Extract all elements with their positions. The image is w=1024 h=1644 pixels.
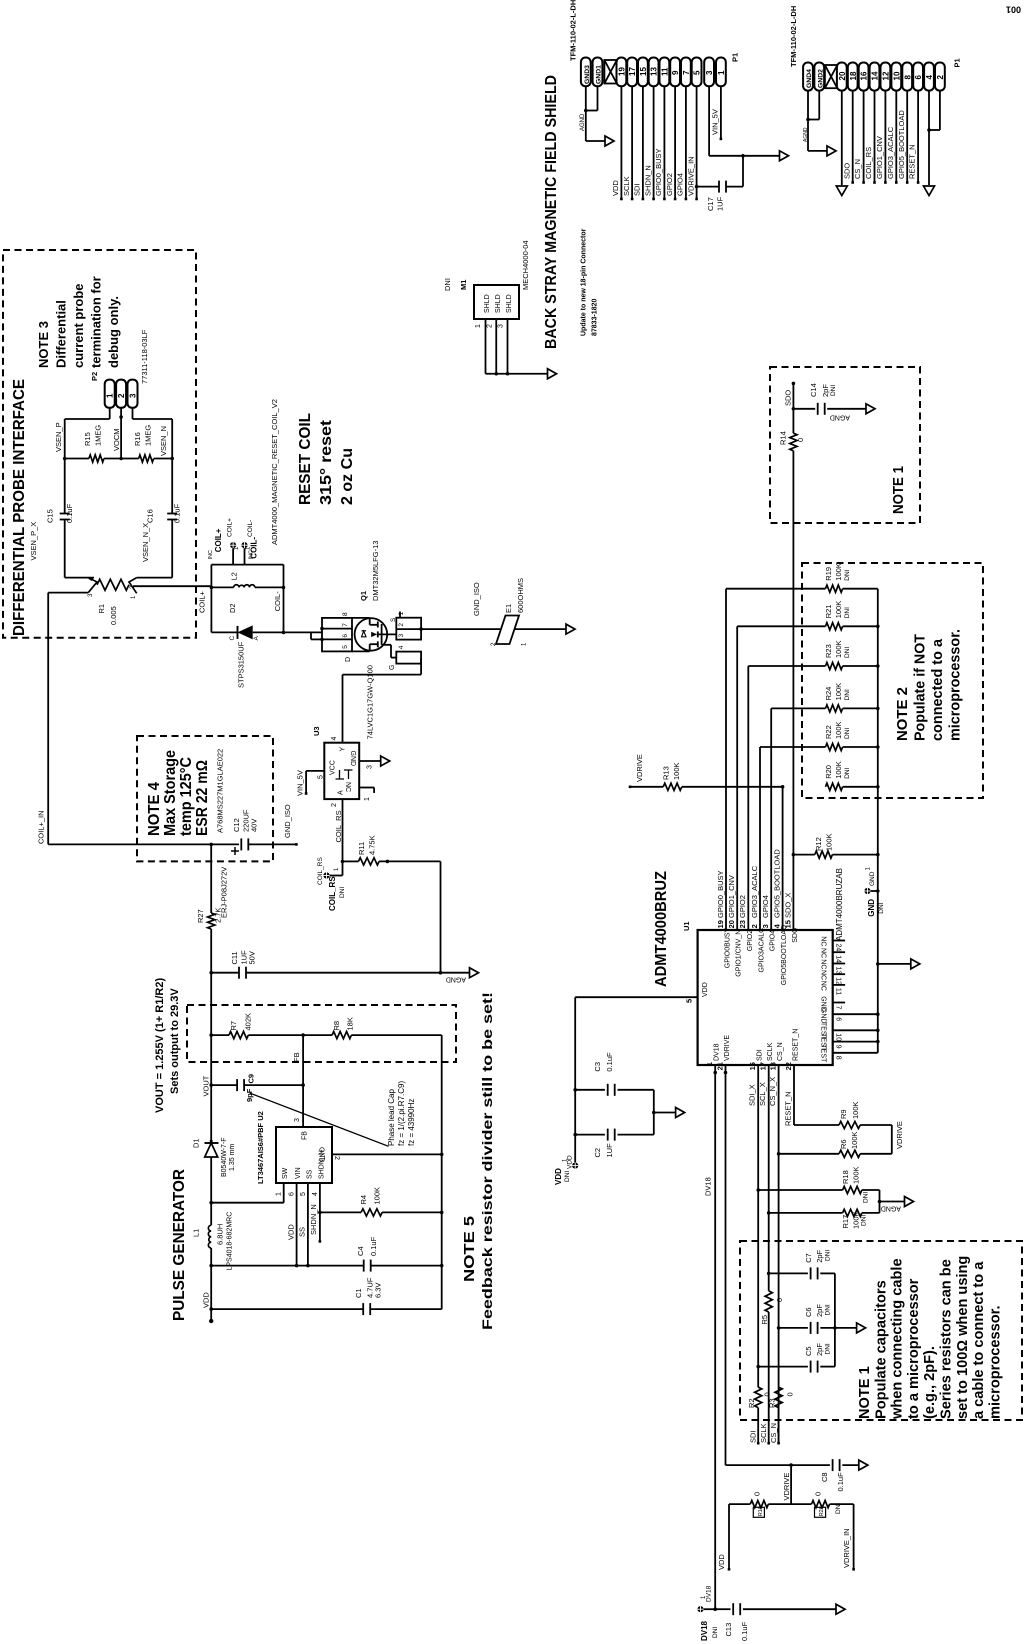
svg-text:0: 0 [796,438,805,442]
svg-text:6: 6 [835,1017,842,1021]
svg-text:P2: P2 [90,372,99,381]
svg-text:DNI: DNI [339,887,346,898]
svg-text:VDRIVE: VDRIVE [782,1473,791,1501]
svg-text:C5: C5 [804,1346,813,1356]
svg-text:R21: R21 [824,605,833,619]
svg-text:SHDN_N: SHDN_N [318,1150,325,1179]
svg-text:R2: R2 [747,1398,756,1408]
svg-text:3: 3 [129,393,138,398]
svg-text:C14: C14 [809,383,818,397]
svg-text:GPIO5_BOOTLOAD: GPIO5_BOOTLOAD [772,849,781,918]
svg-text:R6: R6 [839,1139,848,1149]
svg-text:2pF: 2pF [815,1343,824,1356]
svg-text:VDRIVE: VDRIVE [724,1035,731,1061]
svg-text:AGND: AGND [803,127,809,142]
svg-text:3: 3 [398,633,405,637]
svg-text:ESR 22 mΩ: ESR 22 mΩ [194,760,211,836]
svg-text:100K: 100K [850,1131,859,1149]
svg-text:Populate if NOT: Populate if NOT [912,634,929,741]
svg-text:15: 15 [783,920,792,928]
svg-text:1MEG: 1MEG [144,425,153,446]
svg-text:4.75K: 4.75K [368,835,377,855]
svg-text:DNI: DNI [835,1503,842,1514]
svg-text:1MEG: 1MEG [94,425,103,446]
svg-text:8: 8 [903,75,912,80]
svg-text:SDO: SDO [792,927,799,943]
svg-text:Differential: Differential [54,300,69,368]
svg-text:4: 4 [331,737,338,741]
svg-text:C13: C13 [724,1623,733,1637]
svg-text:Series resistors can be: Series resistors can be [939,1259,955,1419]
svg-text:NC: NC [344,782,351,792]
svg-text:Populate capacitors: Populate capacitors [873,1280,889,1419]
svg-text:100K: 100K [834,640,843,658]
svg-text:C17: C17 [706,197,715,211]
svg-text:3: 3 [367,765,374,769]
svg-text:GND_ISO: GND_ISO [283,804,292,838]
svg-text:100K: 100K [373,1187,382,1205]
svg-text:0.1uF: 0.1uF [740,1621,749,1641]
svg-text:LT3467AIS6#PBF U2: LT3467AIS6#PBF U2 [256,1111,265,1184]
svg-text:a cable to connect to a: a cable to connect to a [971,1261,987,1419]
svg-text:R17: R17 [841,1215,850,1229]
svg-text:R8: R8 [332,1021,341,1031]
svg-text:Feedback resistor divider stil: Feedback resistor divider still to be se… [479,992,495,1330]
svg-text:COIL+: COIL+ [198,590,207,613]
svg-text:GND: GND [869,871,876,886]
svg-text:R5: R5 [760,1315,769,1325]
svg-text:NOTE 1: NOTE 1 [890,466,907,514]
svg-text:11: 11 [835,988,842,995]
svg-text:P1: P1 [731,53,740,62]
svg-text:13: 13 [835,967,842,975]
svg-text:C11: C11 [230,951,239,964]
svg-text:20: 20 [727,920,736,928]
svg-text:1: 1 [475,324,482,328]
svg-text:Max Storage: Max Storage [162,750,179,836]
svg-text:SDO: SDO [783,390,792,406]
svg-text:3: 3 [705,70,714,75]
svg-text:SS: SS [306,1169,313,1179]
svg-text:VDD: VDD [286,1224,295,1240]
svg-text:7: 7 [682,70,691,75]
svg-text:COIL_RS: COIL_RS [328,876,337,911]
svg-text:TEST: TEST [820,1044,827,1063]
svg-text:DV18: DV18 [700,1620,709,1641]
svg-text:RESET_N: RESET_N [793,1029,800,1061]
svg-text:debug only.: debug only. [106,296,121,368]
svg-text:R14: R14 [779,431,788,445]
svg-text:8: 8 [835,1056,842,1060]
svg-text:SDI: SDI [757,1049,764,1061]
svg-text:NC: NC [820,936,827,946]
svg-text:11: 11 [661,67,670,76]
svg-text:0: 0 [775,1298,784,1302]
svg-text:4: 4 [925,75,934,80]
svg-text:0.1uF: 0.1uF [369,1236,378,1256]
svg-text:0: 0 [763,1392,772,1396]
svg-text:R1: R1 [97,604,106,614]
svg-text:GPIO1_CNV: GPIO1_CNV [727,875,736,918]
svg-text:DNI: DNI [825,1343,832,1354]
svg-text:B0540W-7-F: B0540W-7-F [221,1137,228,1177]
svg-text:NC: NC [820,970,827,980]
svg-text:VDD: VDD [702,982,709,997]
svg-text:C1: C1 [354,1288,363,1298]
svg-text:VDD: VDD [611,180,620,196]
svg-text:6.8UH: 6.8UH [216,1224,225,1245]
svg-text:SHLD: SHLD [506,294,513,313]
svg-text:current probe: current probe [71,283,86,368]
svg-text:20: 20 [838,71,847,80]
svg-text:connected to a: connected to a [929,638,946,741]
svg-text:R12: R12 [814,837,823,851]
svg-text:RESET_N: RESET_N [784,1091,793,1126]
svg-text:VIN_5V: VIN_5V [296,770,305,796]
svg-text:GND4: GND4 [806,69,813,88]
svg-text:CS_N: CS_N [853,159,862,179]
svg-text:7: 7 [835,1006,842,1010]
svg-text:0.1uF: 0.1uF [173,503,182,523]
svg-text:DMT32M5LFG-13: DMT32M5LFG-13 [371,541,380,601]
svg-text:INC: INC [208,550,214,560]
svg-text:VDRIVE: VDRIVE [635,754,644,782]
svg-text:9pF: 9pF [245,1088,254,1102]
svg-text:Sets output to 29.3V: Sets output to 29.3V [169,988,181,1094]
svg-text:TFM-110-02-L-DH: TFM-110-02-L-DH [569,0,578,61]
svg-text:19: 19 [716,920,725,928]
svg-text:DNI: DNI [863,1192,870,1203]
svg-text:R23: R23 [824,644,833,658]
svg-text:GPIO1_CNV: GPIO1_CNV [875,136,884,179]
svg-text:C15: C15 [46,509,55,523]
svg-text:MECH4000-04: MECH4000-04 [521,240,530,290]
svg-text:LPS4018-682MRC: LPS4018-682MRC [227,1212,234,1271]
svg-text:D1: D1 [191,1138,200,1148]
svg-text:VDRIVE_IN: VDRIVE_IN [686,156,695,196]
svg-text:R15: R15 [83,432,92,446]
svg-text:2: 2 [936,75,945,80]
svg-text:DNI: DNI [830,385,837,396]
svg-text:E1: E1 [504,604,513,613]
svg-text:18: 18 [849,71,858,80]
svg-text:5: 5 [342,645,349,649]
svg-text:GPIO2: GPIO2 [747,930,754,952]
svg-text:15: 15 [639,67,648,76]
svg-text:DNI: DNI [443,278,452,291]
svg-text:A: A [253,636,260,641]
svg-text:Q1: Q1 [359,591,368,601]
svg-text:2: 2 [331,803,338,807]
svg-text:R7: R7 [229,1021,238,1031]
svg-text:3: 3 [294,1118,301,1122]
svg-text:0: 0 [753,1492,762,1496]
svg-text:1UF: 1UF [605,1143,614,1158]
svg-text:DNI: DNI [844,607,851,618]
svg-text:when connecting cable: when connecting cable [890,1258,906,1420]
svg-text:SDI_X: SDI_X [748,1084,757,1106]
svg-text:PULSE GENERATOR: PULSE GENERATOR [171,1169,188,1321]
svg-text:AGND: AGND [830,414,850,421]
svg-text:R19: R19 [824,567,833,581]
svg-text:ADMT4000_MAGNETIC_RESET_COIL_V: ADMT4000_MAGNETIC_RESET_COIL_V2 [270,399,279,545]
svg-text:DNI: DNI [825,1250,832,1261]
svg-text:GND2: GND2 [817,69,824,88]
svg-text:22: 22 [784,1062,793,1070]
svg-text:C2: C2 [593,1148,602,1158]
svg-text:GPIO2: GPIO2 [738,895,747,918]
svg-text:87833-1820: 87833-1820 [592,299,599,336]
svg-text:R13: R13 [662,766,671,780]
svg-text:0.1uF: 0.1uF [836,1472,845,1492]
svg-text:2pF: 2pF [821,384,830,397]
svg-text:NC: NC [820,981,827,991]
svg-text:STPS3150UF: STPS3150UF [237,641,246,688]
svg-text:6.3V: 6.3V [374,1283,383,1298]
svg-text:Phase lead Cap: Phase lead Cap [387,1089,396,1146]
svg-text:DNI: DNI [844,689,851,700]
svg-text:microprocessor.: microprocessor. [947,629,964,741]
svg-text:100K: 100K [834,721,843,739]
svg-text:12: 12 [835,977,842,985]
svg-text:DNI: DNI [878,902,885,913]
svg-text:SS: SS [298,1227,307,1237]
svg-text:GND_ISO: GND_ISO [472,582,481,616]
svg-text:R26: R26 [819,1506,825,1516]
svg-text:R16: R16 [133,432,142,446]
svg-text:5: 5 [317,775,324,779]
svg-text:6: 6 [914,75,923,80]
svg-text:U3: U3 [312,726,321,736]
svg-text:C3: C3 [593,1062,602,1072]
svg-text:GPIO0_BUSY: GPIO0_BUSY [716,870,725,918]
svg-text:GPIO4: GPIO4 [676,173,685,196]
svg-text:GPIO4: GPIO4 [761,895,770,918]
svg-text:14: 14 [871,71,880,80]
svg-text:S: S [390,617,397,622]
svg-text:C12: C12 [232,818,241,832]
svg-text:fz = 1/(2.pi.R7.C9): fz = 1/(2.pi.R7.C9) [397,1081,406,1146]
svg-text:0: 0 [814,1492,823,1496]
svg-text:SDO: SDO [842,163,851,179]
svg-text:GND1: GND1 [596,65,603,84]
svg-text:L2: L2 [230,572,239,580]
svg-text:GPIO2: GPIO2 [665,173,674,196]
svg-text:SHDN_N: SHDN_N [309,1204,318,1235]
svg-text:D2: D2 [228,603,237,613]
svg-text:4: 4 [312,1192,319,1196]
svg-text:NC: NC [820,948,827,958]
svg-text:DNI: DNI [712,1627,719,1638]
svg-text:17: 17 [759,1062,768,1070]
svg-text:NC: NC [820,959,827,969]
svg-text:77311-118-03LF: 77311-118-03LF [140,329,149,384]
svg-text:6: 6 [289,1192,296,1196]
svg-text:AGND: AGND [580,113,586,131]
svg-text:VDRIVE: VDRIVE [895,1121,904,1149]
svg-text:VIN_5V: VIN_5V [711,109,720,135]
svg-text:C: C [229,636,236,641]
svg-text:RESET COIL: RESET COIL [297,413,314,505]
svg-text:SCLK: SCLK [759,1423,768,1443]
svg-text:AGND: AGND [881,1205,901,1212]
svg-text:50V: 50V [248,951,257,964]
svg-text:GPIO3ACALC: GPIO3ACALC [759,928,766,973]
svg-text:VOUT = 1.255V (1+ R1/R2): VOUT = 1.255V (1+ R1/R2) [154,978,166,1113]
svg-text:12: 12 [882,71,891,80]
svg-text:DNI: DNI [564,1171,571,1182]
svg-text:1UF: 1UF [716,196,725,211]
svg-text:9: 9 [835,1045,842,1049]
svg-text:GND: GND [867,899,876,917]
svg-text:FB: FB [302,1131,309,1140]
svg-text:VSEN_P: VSEN_P [54,422,63,452]
svg-text:temp 125°C: temp 125°C [178,757,195,836]
svg-text:COIL_RS: COIL_RS [864,147,873,179]
svg-text:ADMT4000BRUZAB: ADMT4000BRUZAB [835,868,844,941]
svg-text:C6: C6 [804,1307,813,1317]
svg-text:RESET_N: RESET_N [908,144,917,179]
svg-text:DIFFERENTIAL PROBE INTERFACE: DIFFERENTIAL PROBE INTERFACE [11,379,28,636]
svg-text:VIN: VIN [295,1167,302,1179]
svg-text:24: 24 [835,944,842,952]
svg-text:6: 6 [342,634,349,638]
svg-text:1: 1 [276,1192,283,1196]
svg-text:SCLK: SCLK [767,1042,774,1061]
svg-text:100K: 100K [825,833,834,851]
svg-text:1: 1 [705,1062,714,1066]
svg-text:VSEN_P_X: VSEN_P_X [29,522,38,561]
svg-text:C16: C16 [146,509,155,523]
svg-text:TFM-110-02-L-DH: TFM-110-02-L-DH [789,6,798,67]
svg-text:GPIO0BUSY: GPIO0BUSY [725,927,732,968]
svg-text:DV18: DV18 [704,1177,713,1196]
svg-text:5: 5 [300,1192,307,1196]
svg-text:5: 5 [685,999,694,1003]
svg-text:Y: Y [340,747,347,752]
svg-text:74LVC1G17GW-Q100: 74LVC1G17GW-Q100 [365,665,374,739]
svg-text:L1: L1 [192,1229,201,1237]
svg-text:Update to new 18-pin Connector: Update to new 18-pin Connector [581,228,588,336]
svg-text:SHDN_N: SHDN_N [643,165,652,196]
svg-text:R4: R4 [359,1195,368,1205]
svg-text:SDI: SDI [633,183,642,196]
svg-text:100K: 100K [851,1101,860,1119]
svg-text:1: 1 [398,612,405,616]
svg-text:GPIO4: GPIO4 [770,930,777,952]
svg-text:FB: FB [292,1052,301,1062]
svg-text:VSEN_N: VSEN_N [159,426,168,456]
svg-text:CS_N: CS_N [777,1042,784,1061]
svg-text:NOTE 4: NOTE 4 [146,782,163,836]
svg-text:600OHMS: 600OHMS [516,578,525,613]
svg-text:DNI: DNI [844,767,851,778]
svg-text:VDD: VDD [717,1554,726,1570]
svg-text:C9: C9 [247,1074,256,1084]
svg-text:VOCM: VOCM [112,429,121,452]
svg-text:fz = 43990Hz: fz = 43990Hz [407,1099,416,1146]
svg-text:VCC: VCC [330,760,337,775]
svg-text:8: 8 [342,612,349,616]
svg-text:9: 9 [671,70,680,75]
svg-text:1: 1 [717,70,726,75]
svg-text:C8: C8 [820,1472,829,1482]
svg-text:315° reset: 315° reset [318,420,335,505]
svg-text:0.1uF: 0.1uF [605,1052,614,1072]
svg-text:R22: R22 [824,725,833,739]
svg-text:13: 13 [650,67,659,76]
svg-text:10: 10 [892,71,901,80]
svg-text:SDI: SDI [748,1430,757,1443]
svg-text:001: 001 [1006,5,1021,15]
svg-text:GPIO5BOOTLOAD: GPIO5BOOTLOAD [781,925,788,985]
svg-text:SCL_X: SCL_X [758,1082,767,1106]
svg-text:COIL+: COIL+ [214,528,223,552]
svg-text:A: A [338,790,345,795]
svg-text:GPIO0_BUSY: GPIO0_BUSY [654,148,663,196]
svg-text:ADMT4000BRUZ: ADMT4000BRUZ [653,871,670,987]
svg-text:G: G [389,665,396,670]
svg-text:R20: R20 [824,765,833,779]
svg-text:SDO_X: SDO_X [783,893,792,918]
svg-text:R9: R9 [839,1109,848,1119]
svg-text:U1: U1 [682,921,691,931]
svg-text:1.35 mm: 1.35 mm [229,1144,236,1171]
svg-text:100K: 100K [834,761,843,779]
svg-text:CS_N: CS_N [769,1423,778,1443]
svg-text:SCLK: SCLK [622,176,631,196]
svg-text:termination for: termination for [89,276,104,368]
svg-text:40V: 40V [250,819,259,832]
svg-text:M1: M1 [459,280,468,290]
svg-text:INC: INC [249,550,255,560]
svg-text:100K: 100K [852,1166,861,1184]
svg-text:2: 2 [117,393,126,398]
svg-text:R11: R11 [357,842,366,855]
svg-text:0: 0 [786,1392,795,1396]
svg-text:18K: 18K [346,1017,355,1030]
svg-text:100K: 100K [834,683,843,701]
svg-text:2: 2 [398,623,405,627]
svg-text:GND3: GND3 [584,65,591,84]
svg-text:VOUT: VOUT [201,1075,210,1096]
svg-text:BACK STRAY MAGNETIC FIELD SHIE: BACK STRAY MAGNETIC FIELD SHIELD [543,75,560,349]
svg-text:R10: R10 [758,1506,764,1516]
svg-text:16: 16 [860,71,869,80]
svg-text:COIL-: COIL- [247,520,254,537]
svg-text:COIL+: COIL+ [227,518,234,537]
svg-text:P1: P1 [953,58,962,67]
svg-text:10: 10 [835,1033,842,1041]
svg-text:5: 5 [693,70,702,75]
svg-text:18: 18 [768,1062,777,1070]
svg-text:(e.g., 2pF).: (e.g., 2pF). [922,1346,938,1419]
svg-text:2: 2 [487,324,494,328]
svg-text:4: 4 [398,645,405,649]
svg-text:3: 3 [761,924,770,928]
svg-text:R18: R18 [841,1170,850,1184]
svg-text:0.1uF: 0.1uF [65,503,74,523]
svg-text:1: 1 [364,797,371,801]
svg-text:2: 2 [750,924,759,928]
svg-text:VSEN_N_X: VSEN_N_X [141,523,150,562]
svg-text:2 oz Cu: 2 oz Cu [339,448,356,505]
svg-text:NOTE 2: NOTE 2 [894,687,911,741]
svg-text:21: 21 [715,1062,724,1070]
svg-text:COIL-: COIL- [273,591,282,612]
svg-text:100K: 100K [834,563,843,581]
svg-text:GPIO5_BOOTLOAD: GPIO5_BOOTLOAD [897,110,906,179]
